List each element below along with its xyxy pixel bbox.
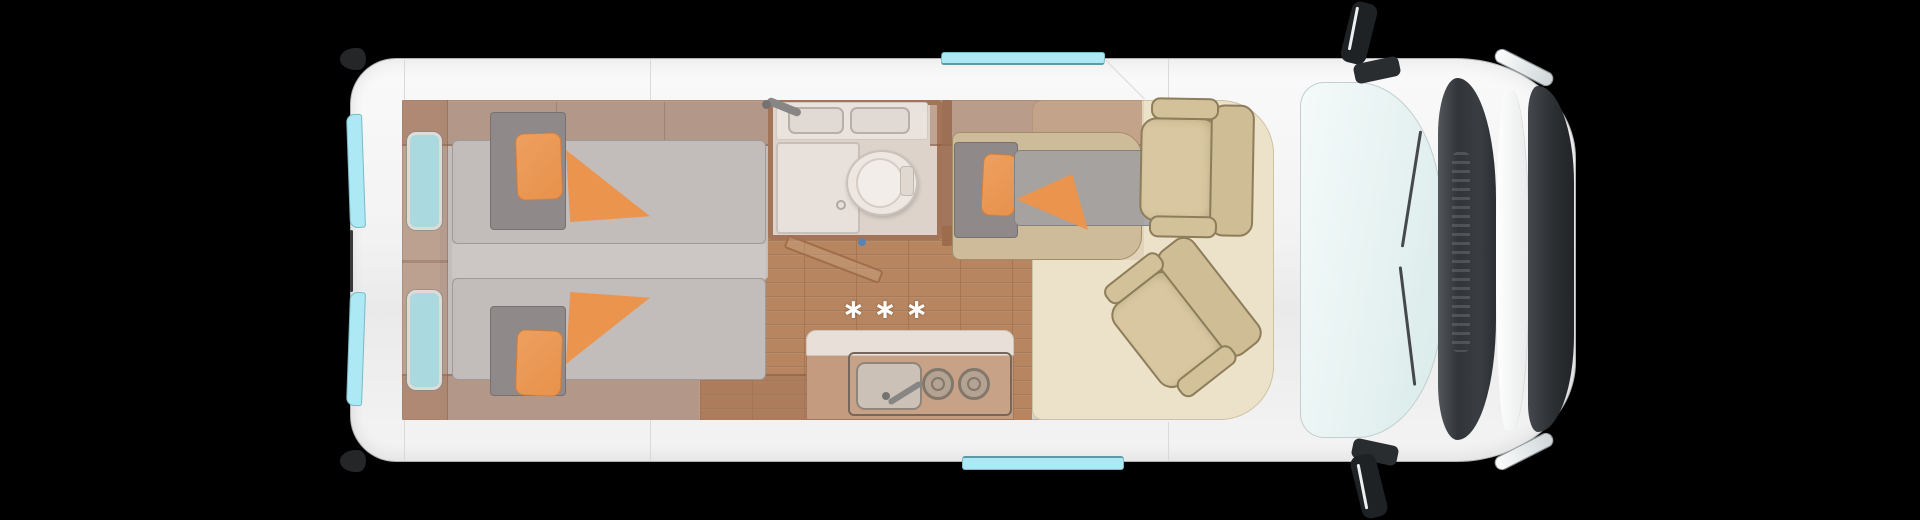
kitchen-faucet-base <box>882 392 890 400</box>
body-seam-front-bottom <box>1168 422 1169 461</box>
body-seam-mid-top <box>650 59 651 101</box>
wall-partition <box>942 100 952 246</box>
vanity-sink-right <box>850 107 910 134</box>
rear-taillight-top <box>340 48 366 70</box>
bed-left-pillow <box>515 132 563 201</box>
bed-right-pillow <box>515 329 563 397</box>
stove-burner-left-ring <box>931 377 945 391</box>
rear-door-seam <box>350 230 353 292</box>
side-mirror-top <box>1336 0 1406 86</box>
front-grille <box>1528 86 1574 432</box>
body-seam-mid-bottom <box>650 420 651 461</box>
toilet-lid-hinge <box>900 166 914 196</box>
floor-detail-blue-item <box>858 238 866 246</box>
lounge-bed-pillow <box>980 153 1017 217</box>
bed-base-cabinet <box>402 374 812 420</box>
body-seam-rear-top <box>404 60 405 100</box>
campervan-floorplan-scene: ∗∗∗ <box>0 0 1920 520</box>
center-infill-cushion <box>452 244 766 278</box>
mirror-blade <box>1339 0 1379 66</box>
side-mirror-bottom <box>1340 434 1412 520</box>
rear-door-window-bottom <box>407 290 442 390</box>
cowl-vents <box>1452 152 1470 352</box>
body-seam-front-top <box>1168 59 1169 101</box>
rear-door-divider <box>402 260 448 263</box>
stove-flames-marker: ∗∗∗ <box>842 294 952 330</box>
body-seam-rear-bottom <box>404 420 405 461</box>
seat-cushion <box>1139 117 1219 222</box>
roof-window-top-strip <box>941 52 1105 65</box>
stove-burner-right-ring <box>967 377 981 391</box>
mirror-highlight <box>1357 464 1369 510</box>
side-window-bottom-strip <box>962 456 1124 470</box>
rear-door-window-top <box>407 132 442 230</box>
vanity-faucet-knob <box>762 100 771 109</box>
mirror-highlight <box>1348 7 1359 51</box>
passenger-swivel-seat <box>1135 101 1255 235</box>
toilet-seat <box>856 158 904 208</box>
rear-taillight-bottom <box>340 450 366 472</box>
seat-armrest <box>1151 97 1219 120</box>
shower-drain <box>836 200 846 210</box>
seat-backrest <box>1209 104 1255 237</box>
